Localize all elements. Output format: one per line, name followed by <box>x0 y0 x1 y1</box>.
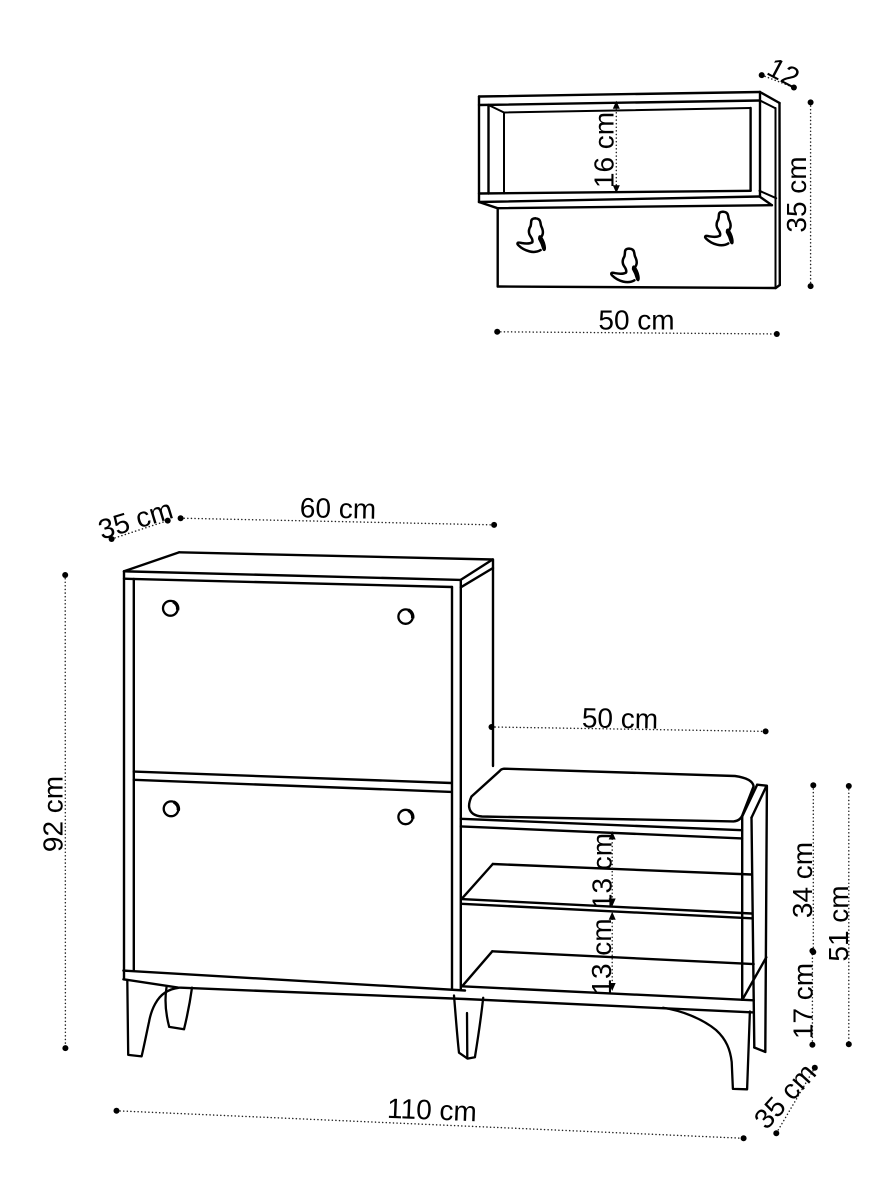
svg-text:13 cm: 13 cm <box>587 833 618 909</box>
svg-text:51 cm: 51 cm <box>823 885 854 961</box>
svg-text:13 cm: 13 cm <box>586 918 617 994</box>
svg-text:50 cm: 50 cm <box>582 702 659 734</box>
svg-text:34 cm: 34 cm <box>787 842 818 918</box>
svg-text:50 cm: 50 cm <box>598 305 674 336</box>
svg-text:60 cm: 60 cm <box>300 492 377 525</box>
svg-text:35 cm: 35 cm <box>781 156 812 232</box>
svg-text:110 cm: 110 cm <box>387 1093 478 1128</box>
svg-text:92 cm: 92 cm <box>38 776 69 852</box>
svg-text:16 cm: 16 cm <box>589 112 620 188</box>
svg-text:17 cm: 17 cm <box>788 963 819 1039</box>
